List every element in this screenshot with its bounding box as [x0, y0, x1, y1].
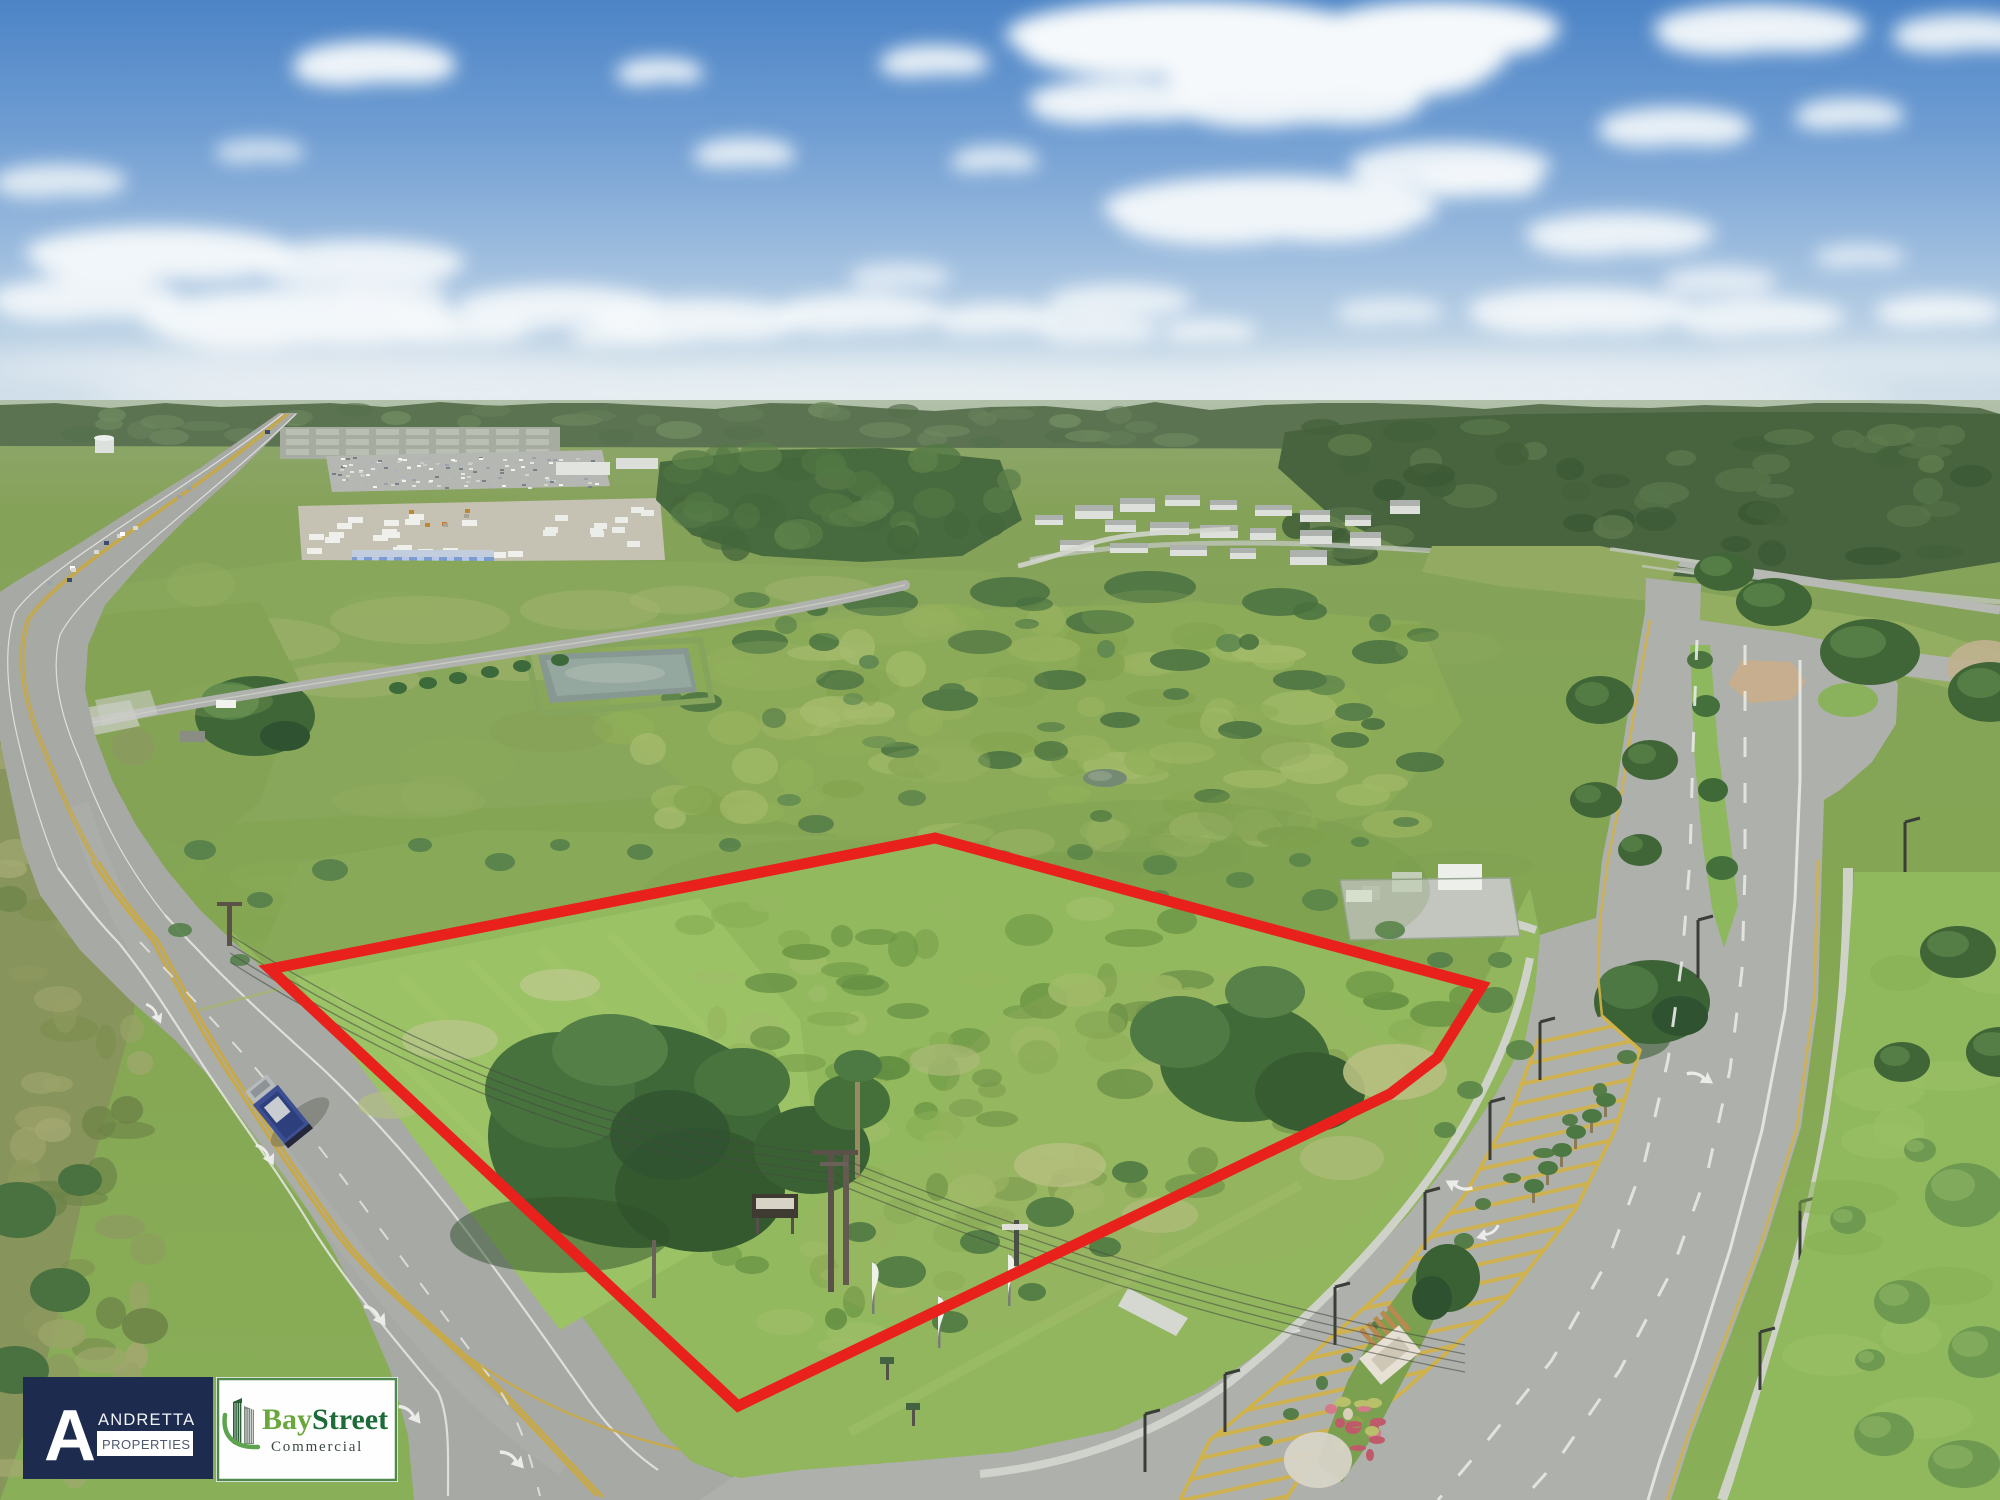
svg-text:A: A: [44, 1396, 96, 1476]
svg-text:Commercial: Commercial: [271, 1439, 363, 1455]
svg-text:ANDRETTA: ANDRETTA: [98, 1411, 195, 1429]
svg-text:BayStreet: BayStreet: [262, 1403, 388, 1436]
svg-text:PROPERTIES: PROPERTIES: [102, 1437, 191, 1452]
